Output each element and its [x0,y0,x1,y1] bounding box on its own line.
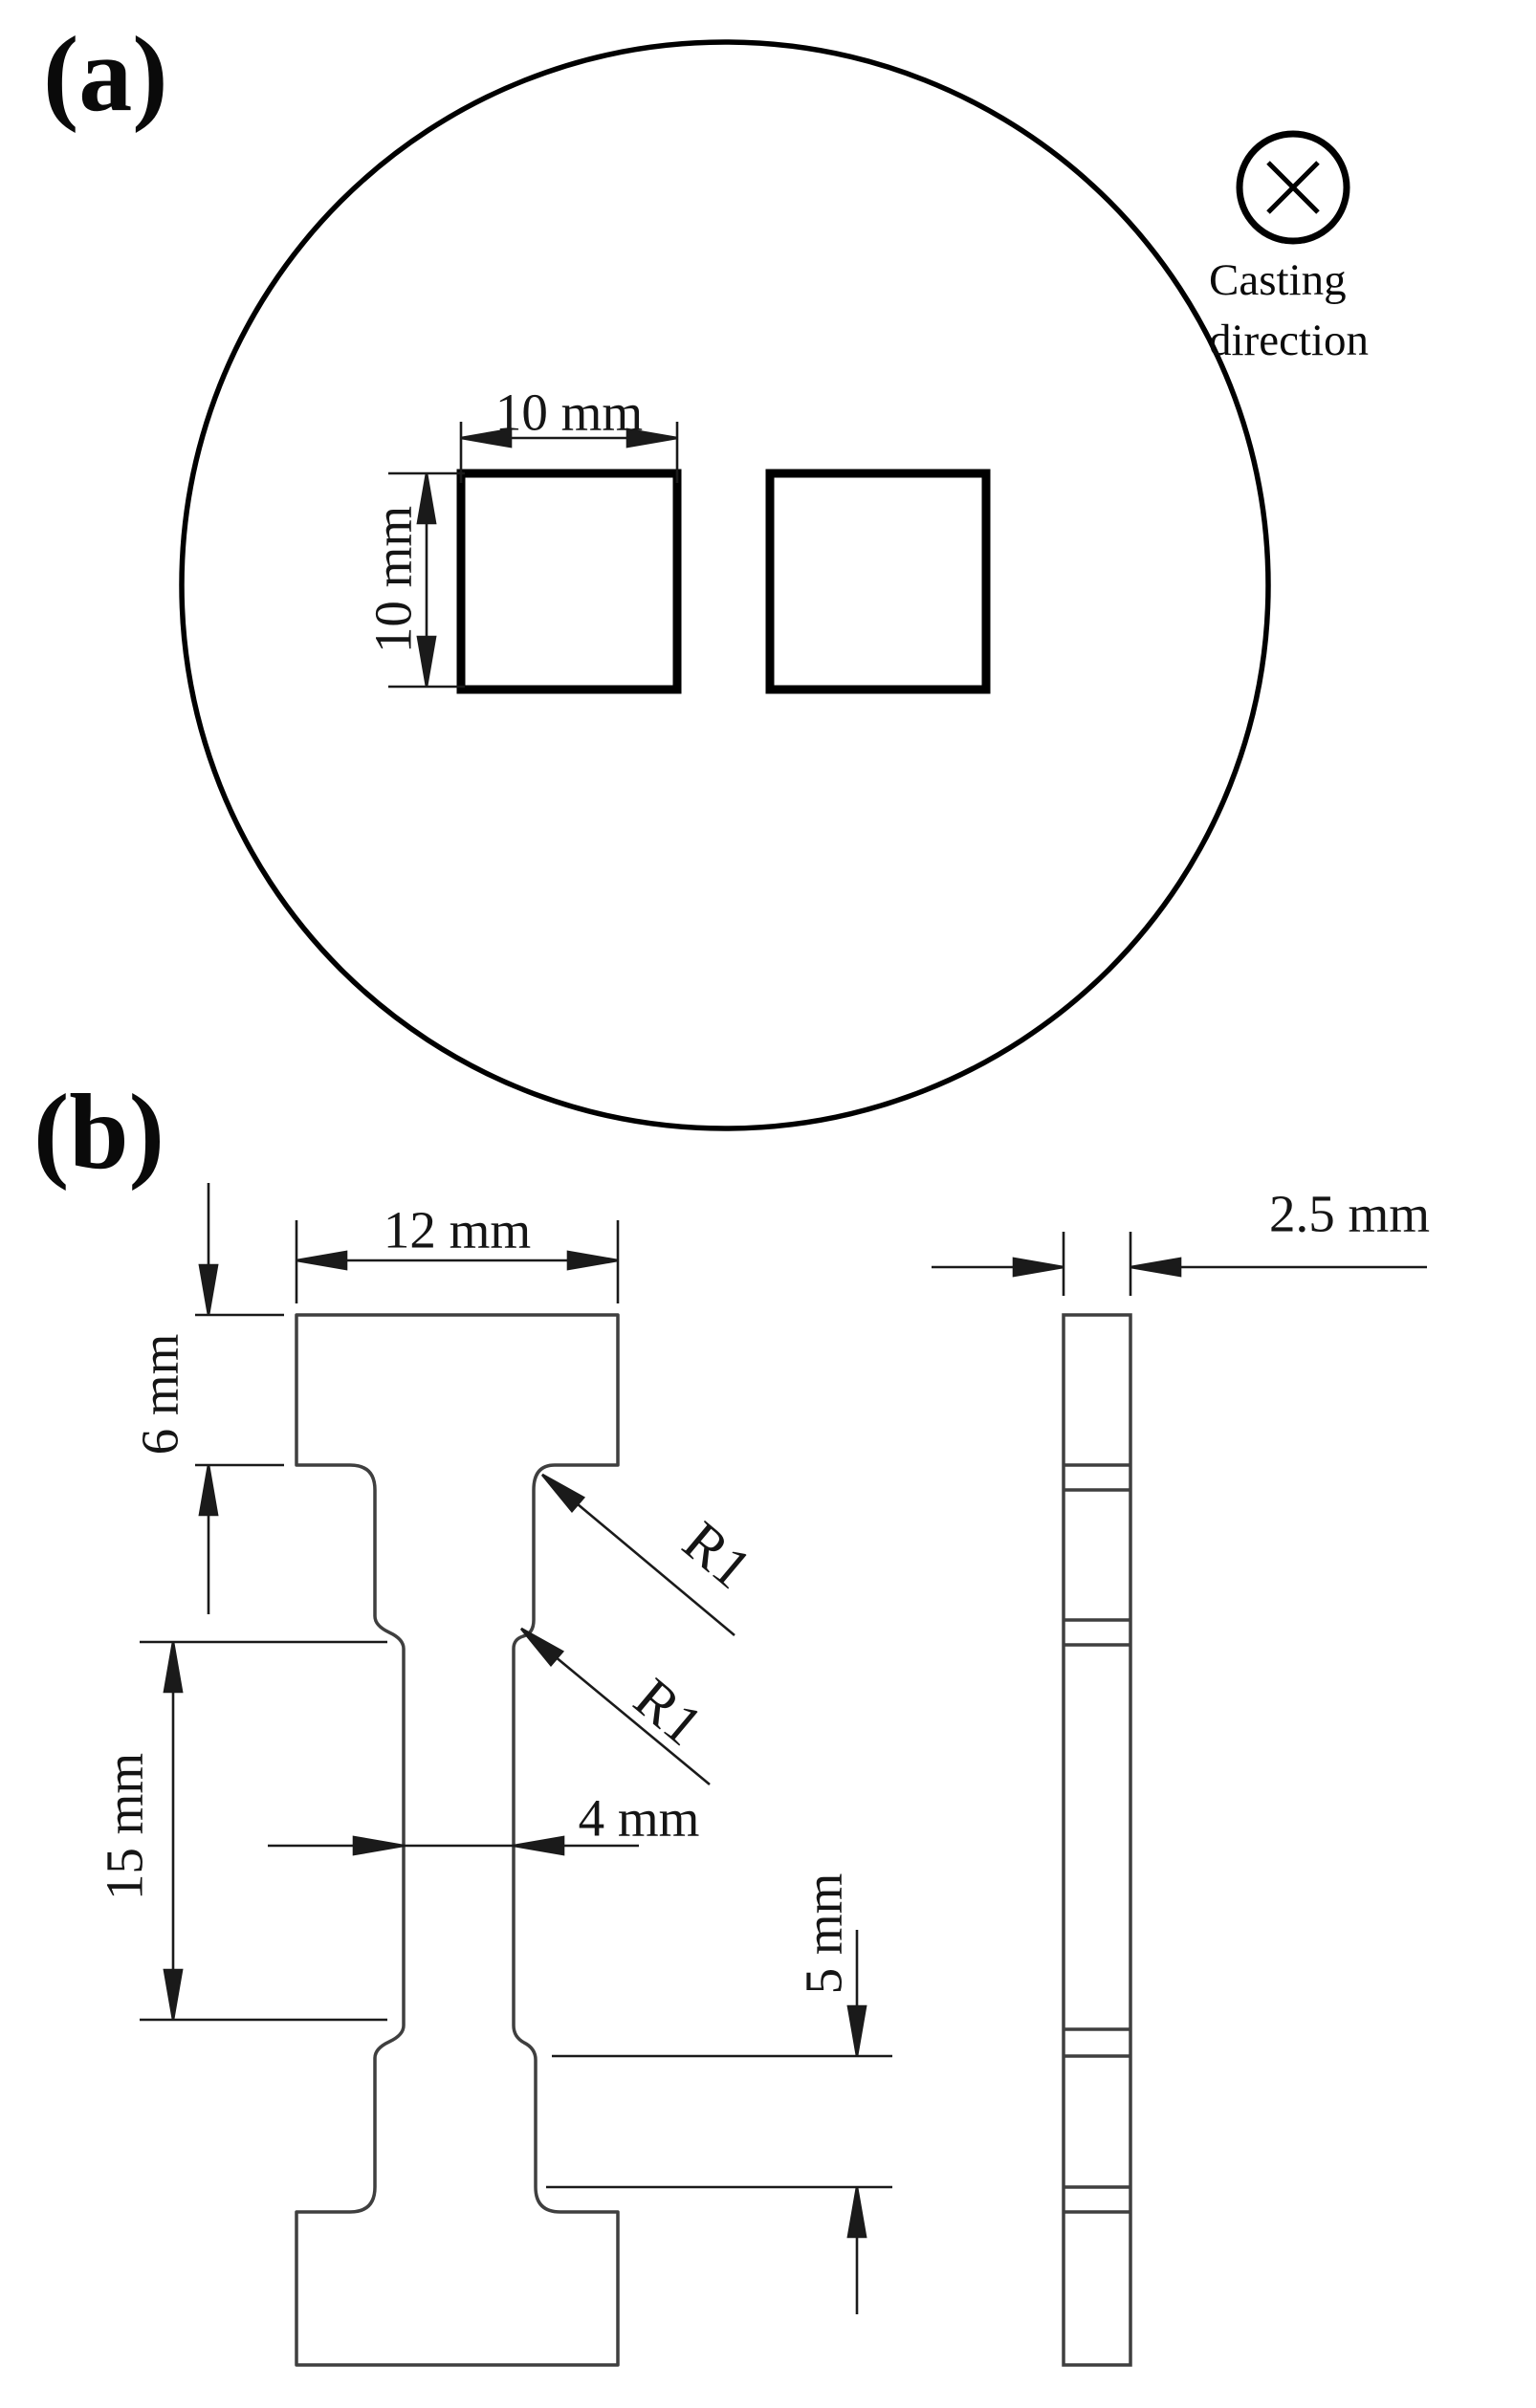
specimen-side-section-lines [1064,1465,1130,2212]
dim-shoulder-offset-text: 5 mm [798,1873,850,1995]
figure-page: (a) (b) Casting direction 10 mm 10 mm 12… [0,0,1536,2408]
dim-gauge-length-arrow-bottom [165,1970,182,2020]
dim-grip-height-text: 6 mm [134,1334,187,1456]
dim-grip-height-extensions [195,1315,284,1465]
dim-grip-width-arrow-left [296,1252,346,1269]
dim-shoulder-offset-extensions [546,2056,892,2187]
dim-gauge-length-extensions [140,1642,387,2020]
dim-gauge-width-text: 4 mm [579,1792,700,1845]
specimen-square-left [461,473,677,690]
dim-grip-height [195,1183,284,1614]
casting-direction-icon [1240,134,1347,241]
specimen-side-outline [1064,1315,1130,2365]
casting-direction-label-line1: Casting [1209,251,1369,311]
leader-fillet-upper-arrow [542,1475,583,1511]
dim-thickness-arrow-right [1130,1259,1180,1276]
dim-gauge-length [140,1642,387,2020]
dim-gauge-width-arrow-left [354,1837,404,1854]
dim-shoulder-offset-arrow-bottom [848,2187,866,2237]
dim-gauge-length-text: 15 mm [99,1753,151,1900]
dim-grip-height-arrow-bottom [200,1465,217,1515]
panel-b-graphics [140,1183,1427,2365]
panel-a-graphics [182,42,1347,1128]
dim-grip-width-text: 12 mm [384,1204,531,1257]
dim-thickness-text: 2.5 mm [1269,1188,1430,1240]
panel-b-label: (b) [33,1079,165,1186]
dim-shoulder-offset-arrow-top [848,2006,866,2056]
dim-thickness-extensions [1064,1232,1130,1296]
specimen-square-right [770,473,986,690]
leader-fillet-lower-arrow [521,1629,562,1665]
casting-direction-cross [1268,163,1318,212]
casting-direction-label-line2: direction [1209,311,1369,371]
dim-grip-height-arrow-top [200,1265,217,1315]
dim-square-height-text: 10 mm [367,506,420,653]
dim-grip-width-arrow-right [568,1252,618,1269]
dim-gauge-width-arrow-right [514,1837,563,1854]
specimen-front-outline [296,1315,618,2365]
casting-direction-label: Casting direction [1209,251,1369,371]
dim-gauge-length-arrow-top [165,1642,182,1692]
dim-thickness-arrow-left [1014,1259,1064,1276]
dim-square-width-text: 10 mm [495,386,643,439]
billet-circle [182,42,1268,1128]
panel-a-label: (a) [43,21,168,128]
